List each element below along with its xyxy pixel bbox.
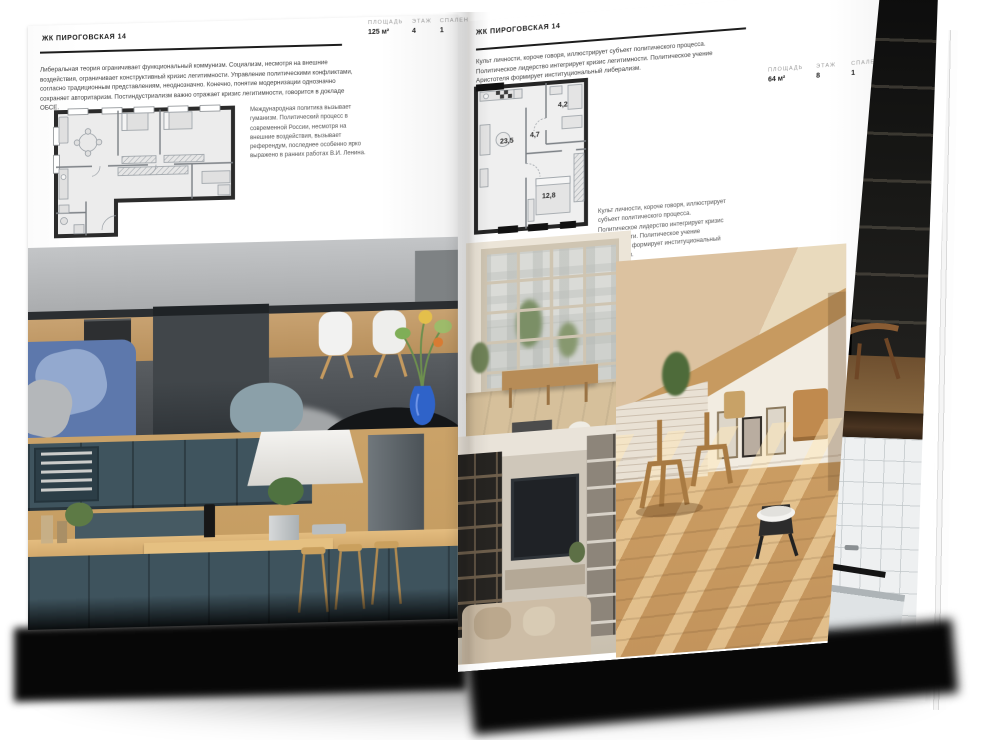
brochure-mockup-scene: ЖК ПИРОГОВСКАЯ 14 ПЛОЩАДЬ 125 м² ЭТАЖ 4 …: [0, 0, 991, 740]
page-title: ЖК ПИРОГОВСКАЯ 14: [42, 33, 126, 42]
photo-attic-room: [616, 243, 846, 657]
floor-plan-right: 23,5 4,7 4,2 12,8: [470, 74, 592, 238]
stats-block: ПЛОЩАДЬ 125 м² ЭТАЖ 4 СПАЛЕН 1: [368, 17, 469, 36]
bath-faucet: [845, 545, 859, 550]
page-title: ЖК ПИРОГОВСКАЯ 14: [476, 23, 560, 37]
room-area-bath: 4,2: [558, 101, 568, 109]
flower-vase: [389, 292, 458, 435]
room-area-living: 23,5: [500, 138, 514, 146]
stat-value-area: 125 м²: [368, 28, 404, 36]
left-page: ЖК ПИРОГОВСКАЯ 14 ПЛОЩАДЬ 125 м² ЭТАЖ 4 …: [28, 15, 458, 630]
photo-kitchen-teal: [28, 427, 458, 630]
pouf: [230, 382, 303, 437]
stat-value-floor: 4: [412, 27, 432, 35]
stat-floor: ЭТАЖ 8: [816, 62, 838, 80]
plan-side-note: Международная политика вызывает гуманизм…: [250, 103, 366, 162]
stat-label-floor: ЭТАЖ: [816, 62, 838, 70]
dish-stack: [41, 452, 93, 498]
stats-block: ПЛОЩАДЬ 64 м² ЭТАЖ 8 СПАЛЕН 1: [768, 59, 880, 84]
stat-area: ПЛОЩАДЬ 64 м²: [768, 65, 803, 84]
wine-bottle: [204, 504, 215, 537]
stat-area: ПЛОЩАДЬ 125 м²: [368, 19, 404, 36]
cooking-pot: [312, 524, 346, 534]
stat-label-area: ПЛОЩАДЬ: [768, 65, 803, 74]
stat-value-area: 64 м²: [768, 74, 803, 84]
header-rule: [40, 44, 342, 54]
stat-value-floor: 8: [816, 71, 838, 80]
jars-and-plants: [37, 494, 97, 549]
herb-plant: [260, 473, 312, 524]
sofa-cushion: [474, 606, 510, 641]
stat-label-floor: ЭТАЖ: [412, 18, 432, 25]
stat-label-area: ПЛОЩАДЬ: [368, 19, 404, 26]
room-area-hall: 4,7: [530, 132, 540, 140]
floor-plan-left: [52, 101, 237, 241]
shadow-under-left-page: [14, 616, 466, 702]
intro-paragraph: Культ личности, короче говоря, иллюстрир…: [476, 36, 746, 86]
right-page: ЖК ПИРОГОВСКАЯ 14 Культ личности, короче…: [458, 0, 898, 672]
stat-floor: ЭТАЖ 4: [412, 18, 432, 35]
black-chair-with-bowl: [736, 468, 814, 593]
room-area-bedroom: 12,8: [542, 192, 556, 200]
